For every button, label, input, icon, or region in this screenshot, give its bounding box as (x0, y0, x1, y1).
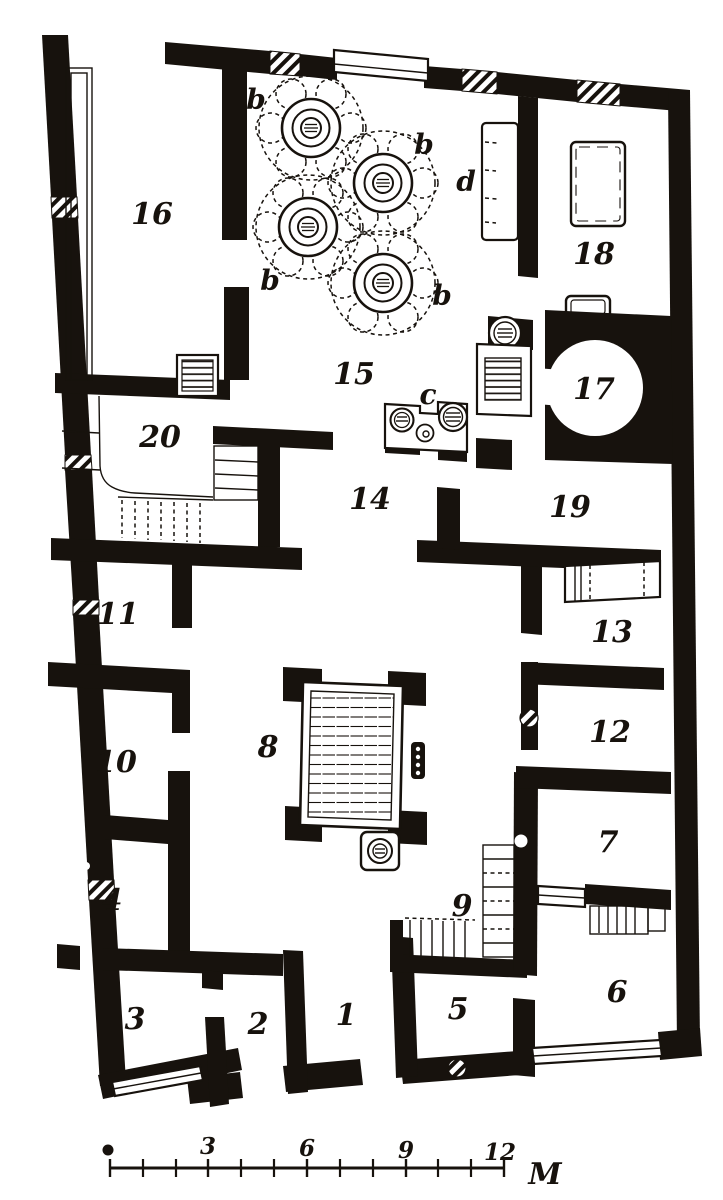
room-label-9: 9 (452, 889, 473, 924)
floor-grate (177, 355, 218, 396)
scale-tick-label-6: 6 (299, 1135, 315, 1162)
room-label-11: 11 (97, 597, 139, 632)
hatched-opening (270, 51, 300, 76)
bed-room18 (571, 142, 625, 226)
wall-socket-dot (82, 862, 90, 870)
floor-plan-drawing: 16 18 17 15 20 14 19 11 13 10 8 12 7 4 9… (0, 0, 723, 1200)
room-label-13: 13 (591, 615, 633, 650)
tree-label-b: b (260, 264, 280, 297)
threshold-room6-top (538, 886, 585, 907)
room-label-14: 14 (349, 482, 391, 517)
scale-unit-label: M (527, 1157, 562, 1192)
wall-socket-dot (48, 509, 56, 517)
room-label-18: 18 (573, 237, 615, 272)
scale-tick-label-12: 12 (484, 1139, 516, 1166)
tree-label-b: b (246, 83, 266, 116)
hatched-opening (51, 197, 78, 218)
room-label-1: 1 (336, 998, 357, 1033)
hatched-opening (448, 1059, 466, 1077)
room-label-3: 3 (125, 1002, 146, 1037)
hatched-opening (520, 709, 538, 727)
room-label-2: 2 (247, 1007, 269, 1042)
hearth-label-c: c (419, 378, 436, 411)
room-label-17: 17 (573, 372, 615, 407)
room-label-19: 19 (549, 490, 591, 525)
recess-label-d: d (456, 165, 476, 198)
room-label-6: 6 (607, 975, 628, 1010)
room-label-7: 7 (598, 825, 619, 860)
room-label-5: 5 (448, 992, 469, 1027)
tree-label-b: b (414, 128, 434, 161)
oven-mouth-opening (536, 368, 562, 406)
puteal-wellhead (361, 832, 399, 870)
room-label-16: 16 (131, 197, 173, 232)
drain-strip (411, 742, 425, 779)
door-pivot-notch (515, 835, 528, 848)
scale-tick-label-3: 3 (200, 1133, 216, 1160)
room-label-20: 20 (138, 420, 181, 455)
room-label-12: 12 (589, 715, 631, 750)
hatched-opening (577, 80, 620, 106)
room-label-4: 4 (102, 883, 123, 918)
hatched-opening (462, 69, 497, 94)
floor-plan-page: 16 18 17 15 20 14 19 11 13 10 8 12 7 4 9… (0, 0, 723, 1200)
tree-label-b: b (432, 279, 452, 312)
hatched-opening (73, 600, 99, 615)
room-label-10: 10 (95, 745, 137, 780)
room-label-8: 8 (257, 730, 279, 765)
scale-tick-label-9: 9 (398, 1137, 414, 1164)
room-label-15: 15 (333, 357, 375, 392)
scale-origin-dot (103, 1145, 114, 1156)
bench-room13 (565, 561, 660, 602)
recess-d (482, 123, 518, 240)
